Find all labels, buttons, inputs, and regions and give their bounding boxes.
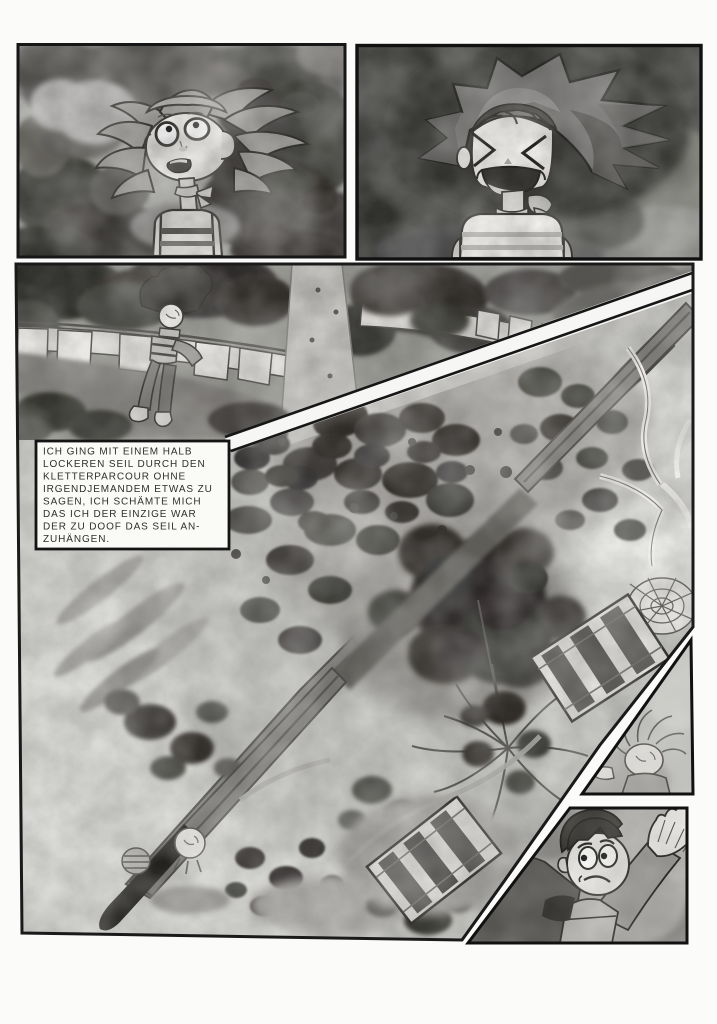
svg-text:IRGENDJEMANDEM ETWAS ZU: IRGENDJEMANDEM ETWAS ZU <box>43 484 213 495</box>
svg-text:ZUHÄNGEN.: ZUHÄNGEN. <box>43 533 110 545</box>
svg-text:SAGEN, ICH SCHÄMTE MICH: SAGEN, ICH SCHÄMTE MICH <box>43 496 202 508</box>
svg-text:ICH GING MIT EINEM HALB: ICH GING MIT EINEM HALB <box>43 447 192 458</box>
svg-text:LOCKEREN SEIL DURCH DEN: LOCKEREN SEIL DURCH DEN <box>43 459 206 470</box>
svg-text:KLETTERPARCOUR OHNE: KLETTERPARCOUR OHNE <box>43 472 186 483</box>
svg-text:DAS ICH DER EINZIGE WAR: DAS ICH DER EINZIGE WAR <box>43 509 197 520</box>
svg-text:DER ZU DOOF DAS SEIL AN-: DER ZU DOOF DAS SEIL AN- <box>43 522 200 533</box>
